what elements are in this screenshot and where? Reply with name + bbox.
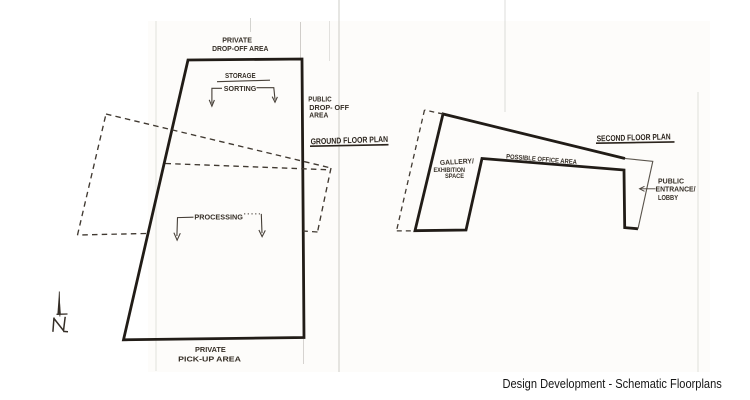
svg-text:Design Development - Schematic: Design Development - Schematic Floorplan… (503, 376, 723, 391)
